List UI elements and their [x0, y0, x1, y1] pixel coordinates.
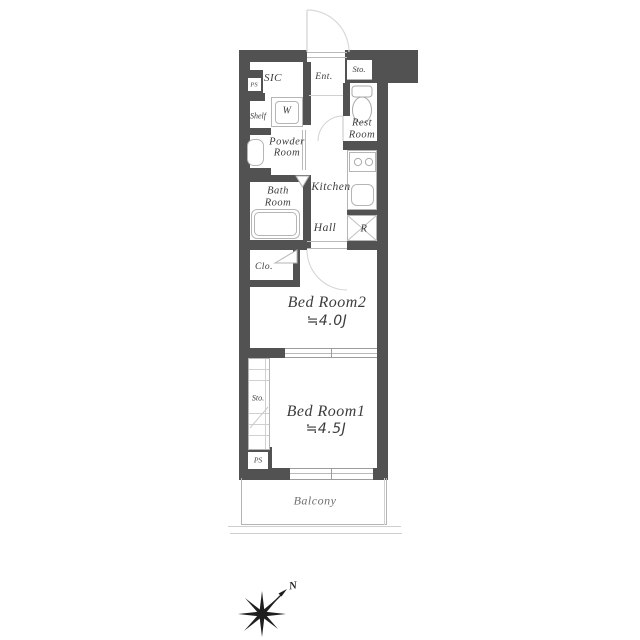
compass-north-label: N	[288, 580, 298, 593]
room-label-washer: W	[283, 106, 292, 117]
room-label-refrigerator: R	[361, 224, 368, 235]
room-label-ps-top: PS	[250, 82, 257, 89]
wall-partition-right	[377, 348, 388, 358]
wall-sic-right	[303, 62, 311, 125]
storage-shelf-line	[249, 380, 269, 381]
storage-left-strip	[248, 358, 270, 450]
compass-rose-icon	[226, 580, 316, 640]
room-size-bedroom1: ≒4.5J	[306, 421, 347, 437]
room-label-ps-bottom: PS	[254, 456, 262, 465]
wall-sic-bottom	[239, 93, 265, 101]
floor-plan: SIC PS Ent. Sto. Shelf W Powder Room Res…	[0, 0, 640, 640]
restroom-door-arc	[318, 116, 343, 141]
bathtub-inner	[254, 212, 297, 236]
storage-shelf-edge	[265, 359, 266, 449]
stove	[349, 152, 376, 172]
wall-sink-bottom	[239, 168, 271, 175]
wall-bath-top	[239, 175, 311, 182]
room-label-bathroom-line1: Bath	[267, 186, 289, 197]
entrance-step-line	[309, 95, 343, 96]
vanity-sink	[247, 139, 264, 166]
storage-shelf-line	[249, 369, 269, 370]
wall-partition-left	[239, 348, 285, 358]
room-label-sic: SIC	[264, 72, 282, 84]
ground-line	[228, 526, 401, 527]
room-label-closet: Clo.	[255, 262, 273, 272]
room-label-shelf: Shelf	[250, 112, 266, 121]
room-label-bedroom1: Bed Room1	[287, 403, 366, 421]
wall-shelf-bottom	[239, 128, 271, 135]
balcony-inner-edge	[384, 478, 385, 525]
entrance-threshold	[307, 52, 347, 53]
wall-bath-right	[303, 175, 311, 248]
room-label-kitchen: Kitchen	[311, 181, 350, 193]
wall-top-left	[239, 50, 307, 62]
wall-restroom-left	[343, 83, 350, 116]
bedroom-partition-window-tick	[331, 348, 332, 358]
room-label-restroom-line1: Rest	[352, 118, 372, 129]
entrance-door-arc	[307, 10, 349, 52]
bedroom2-door-arc	[307, 250, 347, 290]
entrance-threshold	[307, 57, 347, 58]
toilet-tank	[352, 86, 372, 97]
room-label-entrance: Ent.	[315, 72, 333, 82]
wall-closet-bottom	[239, 280, 300, 287]
room-label-storage-top: Sto.	[353, 64, 366, 74]
kitchen-sink	[351, 184, 374, 206]
storage-shelf-line	[249, 413, 269, 414]
room-label-bathroom-line2: Room	[265, 198, 292, 209]
ground-line	[230, 533, 402, 534]
room-size-bedroom2: ≒4.0J	[307, 313, 348, 329]
room-label-powder-line2: Room	[274, 148, 301, 159]
room-label-storage-left: Sto.	[251, 394, 265, 403]
bedroom2-door-threshold	[307, 241, 347, 242]
room-label-hall: Hall	[314, 222, 336, 234]
wall-restroom-bottom	[343, 141, 388, 150]
storage-shelf-line	[249, 435, 269, 436]
compass-north-arrow	[262, 593, 283, 614]
room-label-balcony: Balcony	[294, 494, 337, 509]
bedroom2-door-threshold	[307, 248, 347, 249]
room-label-powder-line1: Powder	[269, 137, 305, 148]
storage-shelf-line	[249, 424, 269, 425]
wall-bedroom2-top-right	[347, 240, 388, 250]
room-label-bedroom2: Bed Room2	[288, 294, 367, 312]
room-label-restroom-line2: Room	[349, 130, 376, 141]
